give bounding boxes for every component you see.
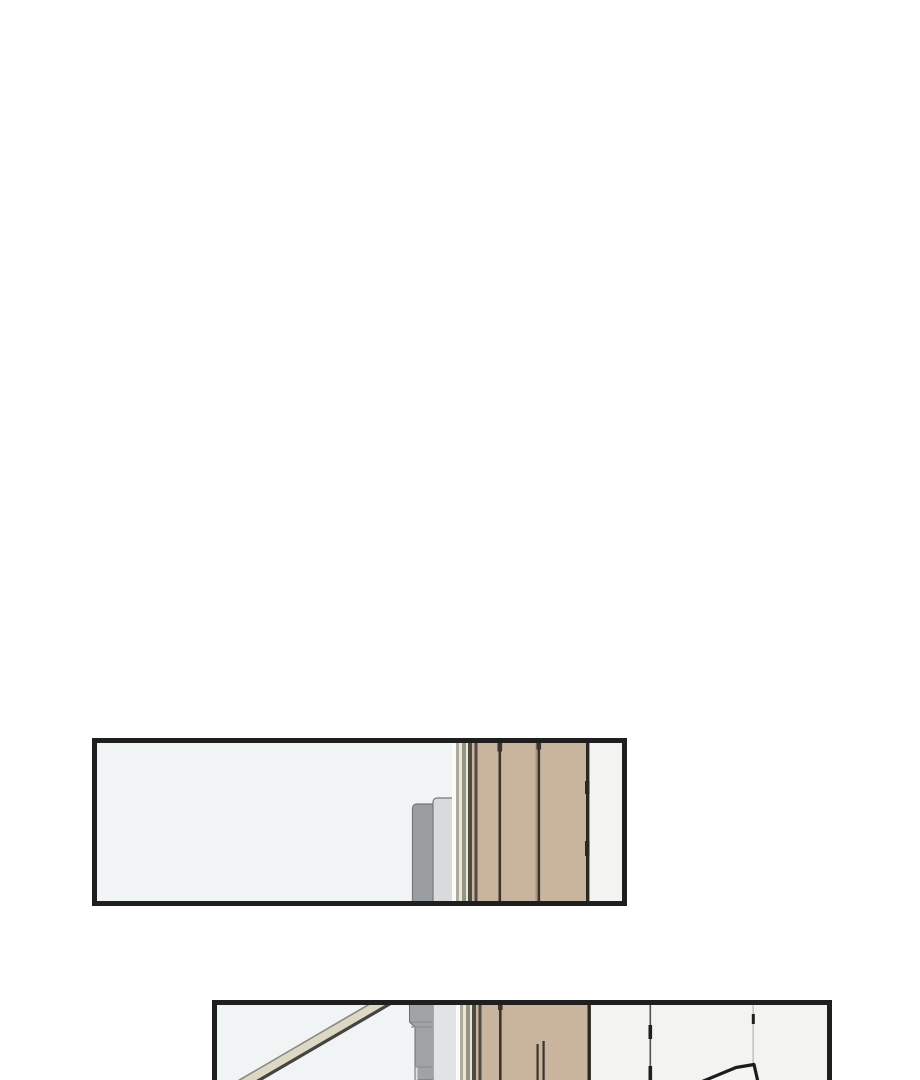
trim-slat [456, 1000, 460, 1080]
wood-panel [482, 1000, 588, 1080]
trim-slat [476, 1000, 479, 1080]
door-frame-highlight [416, 1068, 418, 1080]
door-trim-slats [452, 738, 478, 906]
trim-slat [470, 1000, 472, 1080]
trim-slat [475, 738, 478, 906]
wood-seam [499, 738, 502, 906]
wood-panel [478, 738, 587, 906]
offwhite-wall-panels [591, 1000, 828, 1080]
wood-seam-partial [543, 1041, 545, 1080]
comic-panel-bottom [212, 1000, 832, 1080]
wood-seam [538, 738, 541, 906]
trim-slat [468, 738, 472, 906]
trim-slat [472, 738, 475, 906]
wooden-wall-panels [478, 738, 591, 906]
wall-panel-seam-tick [752, 1014, 755, 1024]
door-trim-slats [456, 1000, 482, 1080]
gray-furniture-backrest [413, 798, 458, 906]
comic-panel-bottom-art [212, 1000, 832, 1080]
webtoon-page [0, 0, 920, 1080]
trim-slat [479, 1000, 482, 1080]
trim-slat [459, 738, 462, 906]
door-frame-light-strip [434, 1000, 457, 1080]
trim-slat [452, 738, 456, 906]
comic-panel-top [92, 738, 627, 906]
wooden-wall-panels [482, 1000, 591, 1080]
offwhite-wall [591, 1000, 828, 1080]
wood-edge [588, 1000, 591, 1080]
trim-slat [462, 738, 466, 906]
trim-slat [456, 738, 459, 906]
trim-slat [466, 738, 468, 906]
trim-slat [472, 1000, 476, 1080]
trim-slat [463, 1000, 466, 1080]
trim-slat [460, 1000, 463, 1080]
wood-edge [586, 738, 589, 906]
wood-seam-partial [537, 1044, 539, 1080]
trim-slat [466, 1000, 470, 1080]
offwhite-wall-strip [590, 738, 625, 906]
wall-panel-seam-tick [649, 1025, 653, 1039]
wall-panel-seam-tick [649, 1066, 653, 1080]
gray-door-frame [410, 1000, 457, 1080]
comic-panel-top-art [92, 738, 627, 906]
wood-seam-faint [536, 738, 537, 906]
wood-seam [499, 1000, 502, 1080]
